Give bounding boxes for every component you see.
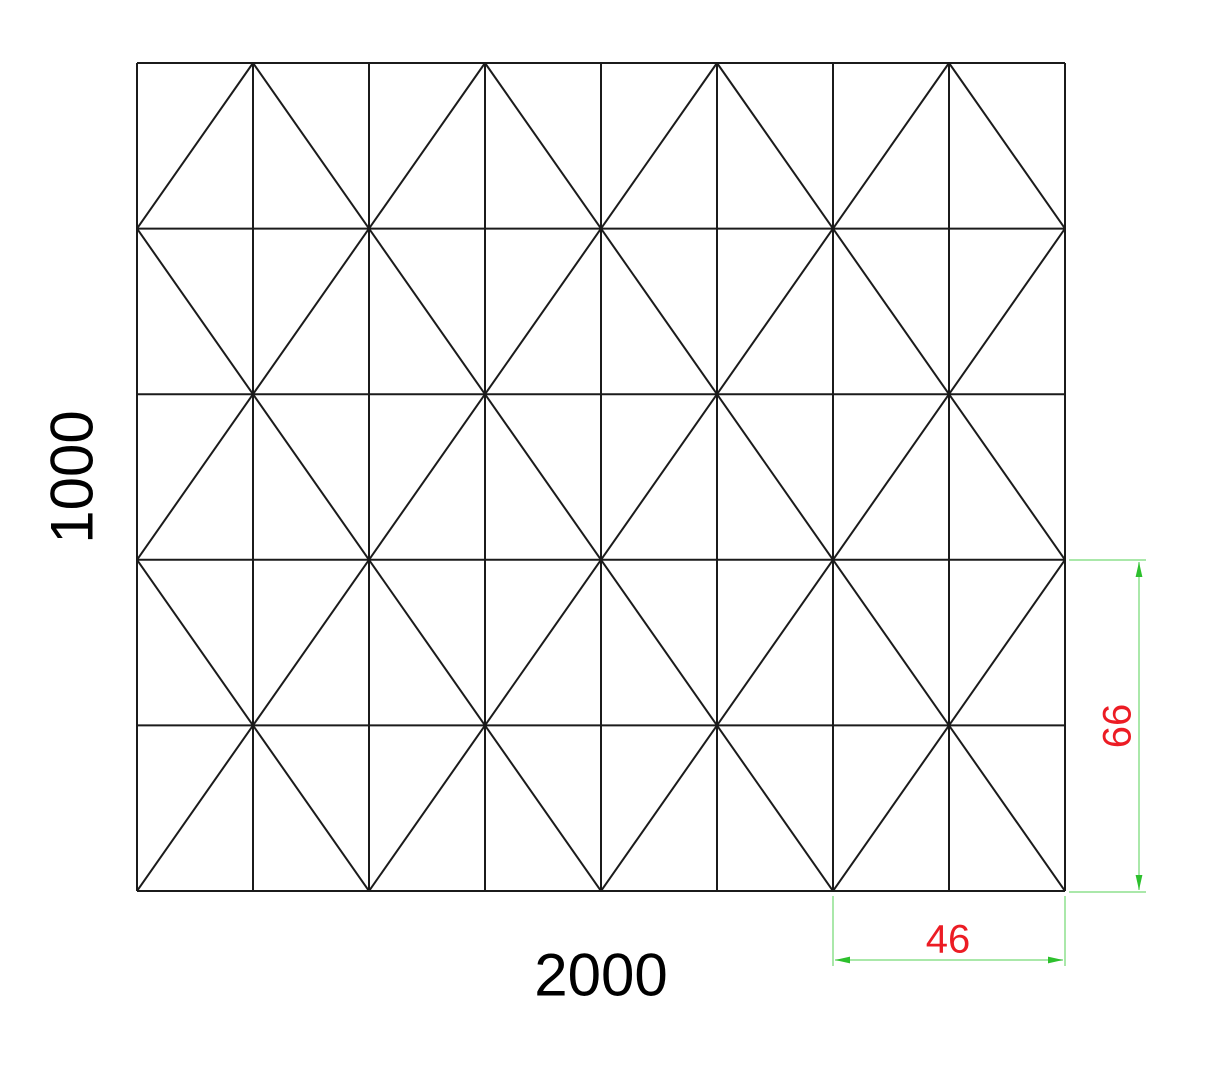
mesh-diagonal-line: [717, 63, 833, 229]
mesh-diagonal-line: [253, 560, 369, 726]
mesh-diagonal-line: [485, 725, 601, 891]
mesh-diagonal-line: [717, 394, 833, 560]
mesh-diagonal-line: [717, 560, 833, 726]
mesh-lines-group: [137, 63, 1065, 891]
mesh-diagonal-line: [833, 394, 949, 560]
mesh-diagonal-line: [369, 560, 485, 726]
mesh-diagonal-line: [137, 63, 253, 229]
mesh-diagonal-line: [949, 560, 1065, 726]
detail-height-dimension-text: 66: [1095, 704, 1139, 749]
mesh-diagonal-line: [833, 63, 949, 229]
mesh-diagonal-line: [601, 560, 717, 726]
mesh-diagonal-line: [369, 394, 485, 560]
mesh-diagonal-line: [485, 394, 601, 560]
mesh-diagonal-line: [253, 725, 369, 891]
mesh-diagonal-line: [137, 394, 253, 560]
mesh-diagonal-line: [485, 560, 601, 726]
dimension-arrow-up: [1136, 562, 1143, 577]
mesh-diagonal-line: [601, 229, 717, 395]
mesh-diagonal-line: [833, 560, 949, 726]
mesh-diagonal-line: [949, 63, 1065, 229]
dimension-arrow-down: [1136, 875, 1143, 890]
mesh-diagonal-line: [137, 560, 253, 726]
mesh-diagonal-line: [253, 394, 369, 560]
overall-height-label: 1000: [39, 410, 106, 543]
mesh-diagonal-line: [949, 725, 1065, 891]
mesh-diagonal-line: [601, 63, 717, 229]
drawing-stage: 1000 2000 66 46: [0, 0, 1214, 1066]
mesh-diagonal-line: [369, 63, 485, 229]
overall-width-label: 2000: [534, 942, 667, 1009]
mesh-diagonal-line: [949, 394, 1065, 560]
mesh-diagonal-line: [717, 725, 833, 891]
mesh-diagonal-line: [601, 725, 717, 891]
mesh-diagonal-line: [253, 229, 369, 395]
mesh-diagonal-line: [485, 229, 601, 395]
mesh-diagonal-line: [949, 229, 1065, 395]
mesh-diagonal-line: [833, 725, 949, 891]
detail-width-dimension-text: 46: [926, 917, 971, 961]
mesh-diagonal-line: [369, 229, 485, 395]
mesh-panel-drawing: 1000 2000 66 46: [0, 0, 1214, 1066]
mesh-diagonal-line: [137, 725, 253, 891]
dimension-annotations-group: [833, 560, 1146, 966]
mesh-diagonal-line: [253, 63, 369, 229]
mesh-diagonal-line: [369, 725, 485, 891]
mesh-diagonal-line: [137, 229, 253, 395]
dimension-arrow-left: [835, 957, 850, 964]
mesh-diagonal-line: [601, 394, 717, 560]
mesh-diagonal-line: [485, 63, 601, 229]
mesh-diagonal-line: [833, 229, 949, 395]
dimension-arrow-right: [1048, 957, 1063, 964]
mesh-diagonal-line: [717, 229, 833, 395]
